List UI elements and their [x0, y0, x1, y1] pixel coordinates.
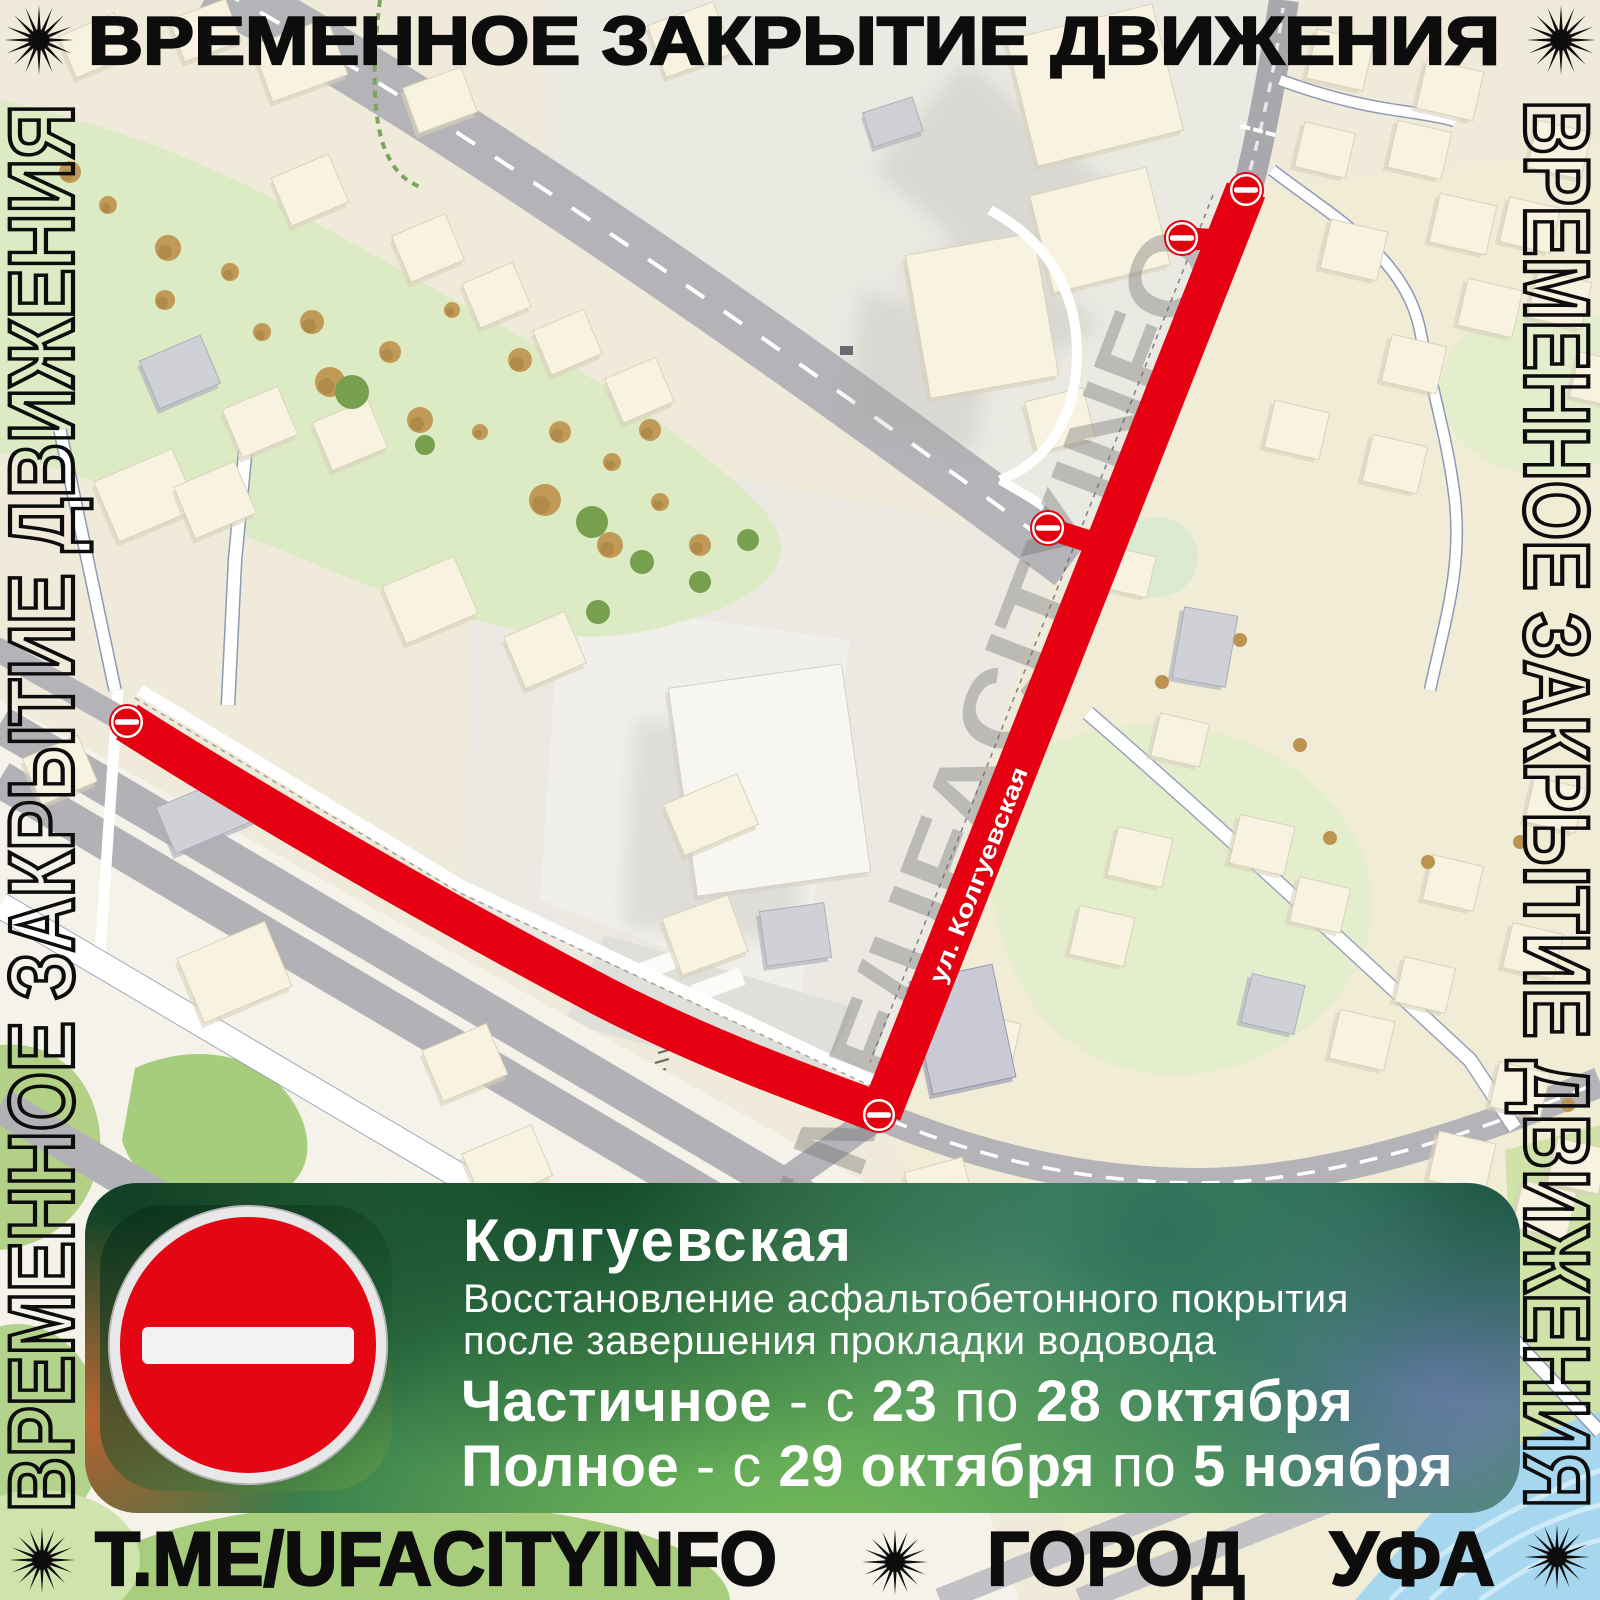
svg-text:T.ME/UFACITYINFO: T.ME/UFACITYINFO [95, 1517, 777, 1600]
svg-text:ГОРОД: ГОРОД [987, 1517, 1245, 1600]
svg-text:ВРЕМЕННОЕ ЗАКРЫТИЕ ДВИЖЕНИЯ: ВРЕМЕННОЕ ЗАКРЫТИЕ ДВИЖЕНИЯ [88, 3, 1500, 79]
svg-text:ВРЕМЕННОЕ ЗАКРЫТИЕ ДВИЖЕНИЯ: ВРЕМЕННОЕ ЗАКРЫТИЕ ДВИЖЕНИЯ [0, 104, 93, 1512]
svg-text:УФА: УФА [1330, 1517, 1495, 1600]
